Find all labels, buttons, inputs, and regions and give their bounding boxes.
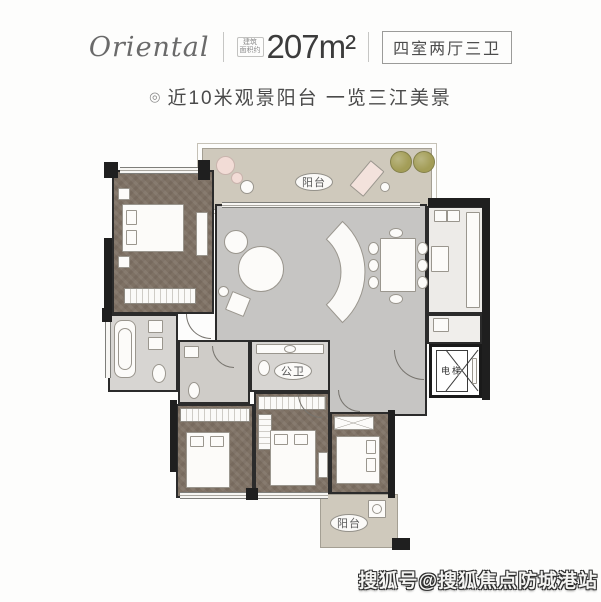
wall-segment — [428, 198, 490, 207]
pillow — [366, 458, 376, 472]
wall-segment — [102, 308, 112, 322]
area-group: 建筑 面积约 207m² — [237, 28, 356, 66]
dining-chair — [389, 228, 403, 238]
wall-segment — [482, 202, 490, 352]
dining-chair — [368, 259, 379, 272]
planter-icon — [240, 180, 254, 194]
coffee-table — [238, 246, 284, 292]
subtitle-text: 近10米观景阳台 一览三江美景 — [167, 83, 451, 110]
pillow — [126, 210, 137, 225]
plant-icon — [216, 156, 235, 175]
elevator-door — [472, 358, 477, 384]
room-label-public-bath: 公卫 — [274, 362, 312, 380]
toilet — [258, 360, 270, 376]
bathtub-basin — [118, 328, 132, 370]
wall-segment — [104, 162, 118, 178]
pillow — [126, 230, 137, 245]
divider — [368, 32, 369, 62]
area-prefix-label: 建筑 面积约 — [237, 37, 264, 57]
bench — [318, 452, 328, 478]
brand-label: Oriental — [89, 32, 210, 63]
wall-segment — [104, 238, 112, 316]
wall-segment — [246, 488, 258, 500]
dining-chair — [417, 276, 428, 289]
door-arc — [186, 314, 211, 339]
nightstand — [118, 256, 130, 268]
kitchen-counter — [466, 212, 480, 308]
layout-badge: 四室两厅三卫 — [382, 31, 512, 64]
wall-segment — [482, 340, 490, 400]
washer-drum — [372, 504, 382, 514]
pillow — [294, 434, 308, 445]
refrigerator — [431, 246, 449, 272]
pillow — [210, 436, 224, 447]
nightstand — [118, 188, 130, 200]
toilet — [152, 364, 166, 383]
dining-chair — [417, 259, 428, 272]
wardrobe — [180, 408, 250, 422]
dining-table — [380, 238, 416, 292]
room-label-balcony-bottom: 阳台 — [330, 514, 368, 532]
area-prefix-line2: 面积约 — [240, 47, 261, 55]
balcony-door-window — [222, 202, 420, 208]
wall-segment — [392, 538, 410, 550]
subtitle: ◎ 近10米观景阳台 一览三江美景 — [0, 83, 601, 110]
wardrobe — [124, 288, 196, 304]
vanity-sink — [148, 337, 163, 350]
dining-chair — [417, 242, 428, 255]
window-band — [120, 167, 206, 174]
dining-chair — [368, 276, 379, 289]
plant-tree-icon — [413, 151, 435, 173]
tv-cabinet — [196, 212, 208, 256]
vanity-sink — [148, 320, 163, 333]
sofa-curved — [287, 212, 367, 332]
plan-header: Oriental 建筑 面积约 207m² 四室两厅三卫 — [0, 28, 601, 66]
area-value: 207m² — [267, 28, 356, 66]
room-label-balcony-top: 阳台 — [295, 173, 333, 191]
washbasin — [184, 346, 199, 358]
dining-chair — [368, 242, 379, 255]
floor-plan: 阳台 电梯 — [92, 142, 528, 554]
wall-segment — [198, 160, 210, 180]
watermark: 搜狐号@搜狐焦点防城港站 — [358, 566, 598, 593]
room-label-elevator: 电梯 — [434, 364, 470, 377]
window-band — [105, 322, 111, 378]
kitchen-sink — [434, 210, 460, 222]
toilet — [188, 382, 200, 399]
dining-chair — [389, 294, 403, 304]
area-prefix-line1: 建筑 — [240, 39, 261, 47]
wardrobe-x — [334, 416, 374, 430]
wall-segment — [388, 410, 395, 498]
coffee-table-small — [224, 230, 248, 254]
wall-segment — [170, 400, 177, 472]
pillow — [274, 434, 288, 445]
stair-step — [433, 318, 449, 332]
plant-tree-icon — [390, 151, 412, 173]
pillow — [366, 440, 376, 454]
bullet-icon: ◎ — [149, 89, 160, 105]
pillow — [190, 436, 204, 447]
divider — [223, 32, 224, 62]
sink — [284, 345, 296, 353]
stool — [218, 286, 229, 297]
side-table — [380, 182, 390, 192]
page: Oriental 建筑 面积约 207m² 四室两厅三卫 ◎ 近10米观景阳台 … — [0, 0, 601, 602]
